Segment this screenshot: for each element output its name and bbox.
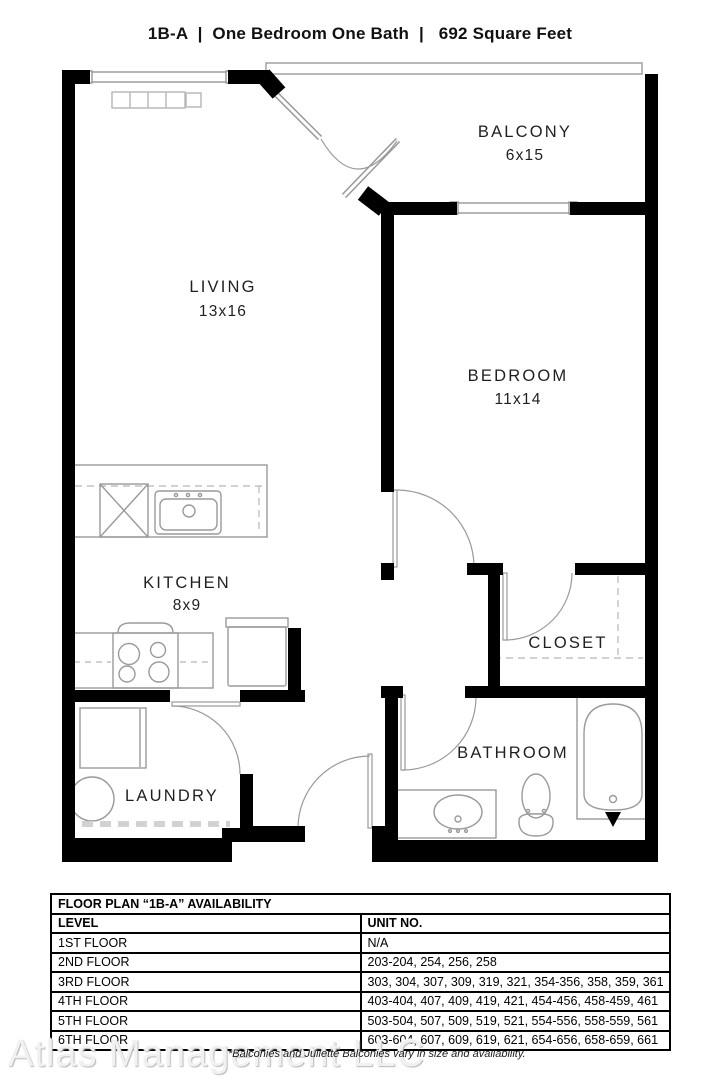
bathtub — [577, 697, 650, 819]
living-label: LIVING — [189, 278, 256, 296]
bedroom-dims: 11x14 — [494, 391, 541, 408]
level-cell: 1ST FLOOR — [51, 933, 361, 953]
wall-right — [645, 74, 658, 862]
kitchen-sink — [155, 491, 221, 534]
kitchen-counter-upper — [72, 465, 267, 537]
closet-label: CLOSET — [528, 634, 607, 652]
column-units: UNIT NO. — [361, 914, 671, 934]
laundry-label: LAUNDRY — [125, 787, 219, 805]
table-row: 2ND FLOOR 203-204, 254, 256, 258 — [51, 953, 670, 973]
toilet — [519, 774, 553, 836]
units-cell: N/A — [361, 933, 671, 953]
level-cell: 5TH FLOOR — [51, 1011, 361, 1031]
balcony-door — [262, 80, 398, 196]
laundry-door — [172, 702, 240, 774]
closet-door — [503, 573, 572, 640]
stove — [113, 623, 178, 688]
units-cell: 203-204, 254, 256, 258 — [361, 953, 671, 973]
bedroom-door — [393, 490, 474, 567]
bedroom-label: BEDROOM — [468, 367, 569, 385]
table-title: FLOOR PLAN “1B-A” AVAILABILITY — [51, 894, 670, 914]
kitchen-dims: 8x9 — [173, 597, 202, 614]
kitchen-label: KITCHEN — [143, 574, 231, 592]
column-level: LEVEL — [51, 914, 361, 934]
bathroom-vanity-sink — [396, 790, 496, 838]
table-row: 3RD FLOOR 303, 304, 307, 309, 319, 321, … — [51, 972, 670, 992]
water-heater — [70, 777, 114, 821]
table-header-row: LEVEL UNIT NO. — [51, 914, 670, 934]
living-dims: 13x16 — [199, 303, 247, 320]
table-row: 5TH FLOOR 503-504, 507, 509, 519, 521, 5… — [51, 1011, 670, 1031]
floor-plan-page: { "title": { "plan_code": "1B-A", "separ… — [0, 0, 720, 1080]
entry-door — [298, 754, 372, 828]
level-cell: 4TH FLOOR — [51, 992, 361, 1012]
units-cell: 403-404, 407, 409, 419, 421, 454-456, 45… — [361, 992, 671, 1012]
table-row: 1ST FLOOR N/A — [51, 933, 670, 953]
bedroom-window — [455, 203, 572, 213]
washer — [80, 708, 146, 768]
units-cell: 303, 304, 307, 309, 319, 321, 354-356, 3… — [361, 972, 671, 992]
level-cell: 2ND FLOOR — [51, 953, 361, 973]
heater-grid — [112, 92, 201, 108]
table-row: 4TH FLOOR 403-404, 407, 409, 419, 421, 4… — [51, 992, 670, 1012]
availability-table: FLOOR PLAN “1B-A” AVAILABILITY LEVEL UNI… — [50, 893, 671, 1051]
units-cell: 503-504, 507, 509, 519, 521, 554-556, 55… — [361, 1011, 671, 1031]
level-cell: 3RD FLOOR — [51, 972, 361, 992]
living-window — [88, 72, 228, 82]
balcony-disclaimer: *Balconies and Juliette Balconies vary i… — [228, 1048, 526, 1060]
kitchen-counter-lower — [72, 633, 213, 688]
table-title-row: FLOOR PLAN “1B-A” AVAILABILITY — [51, 894, 670, 914]
balcony-label: BALCONY — [478, 123, 572, 141]
balcony-rail — [266, 63, 642, 74]
refrigerator — [226, 618, 288, 686]
dishwasher — [100, 484, 148, 537]
balcony-dims: 6x15 — [506, 147, 544, 164]
wall-left — [62, 70, 75, 862]
bathroom-label: BATHROOM — [457, 744, 569, 762]
